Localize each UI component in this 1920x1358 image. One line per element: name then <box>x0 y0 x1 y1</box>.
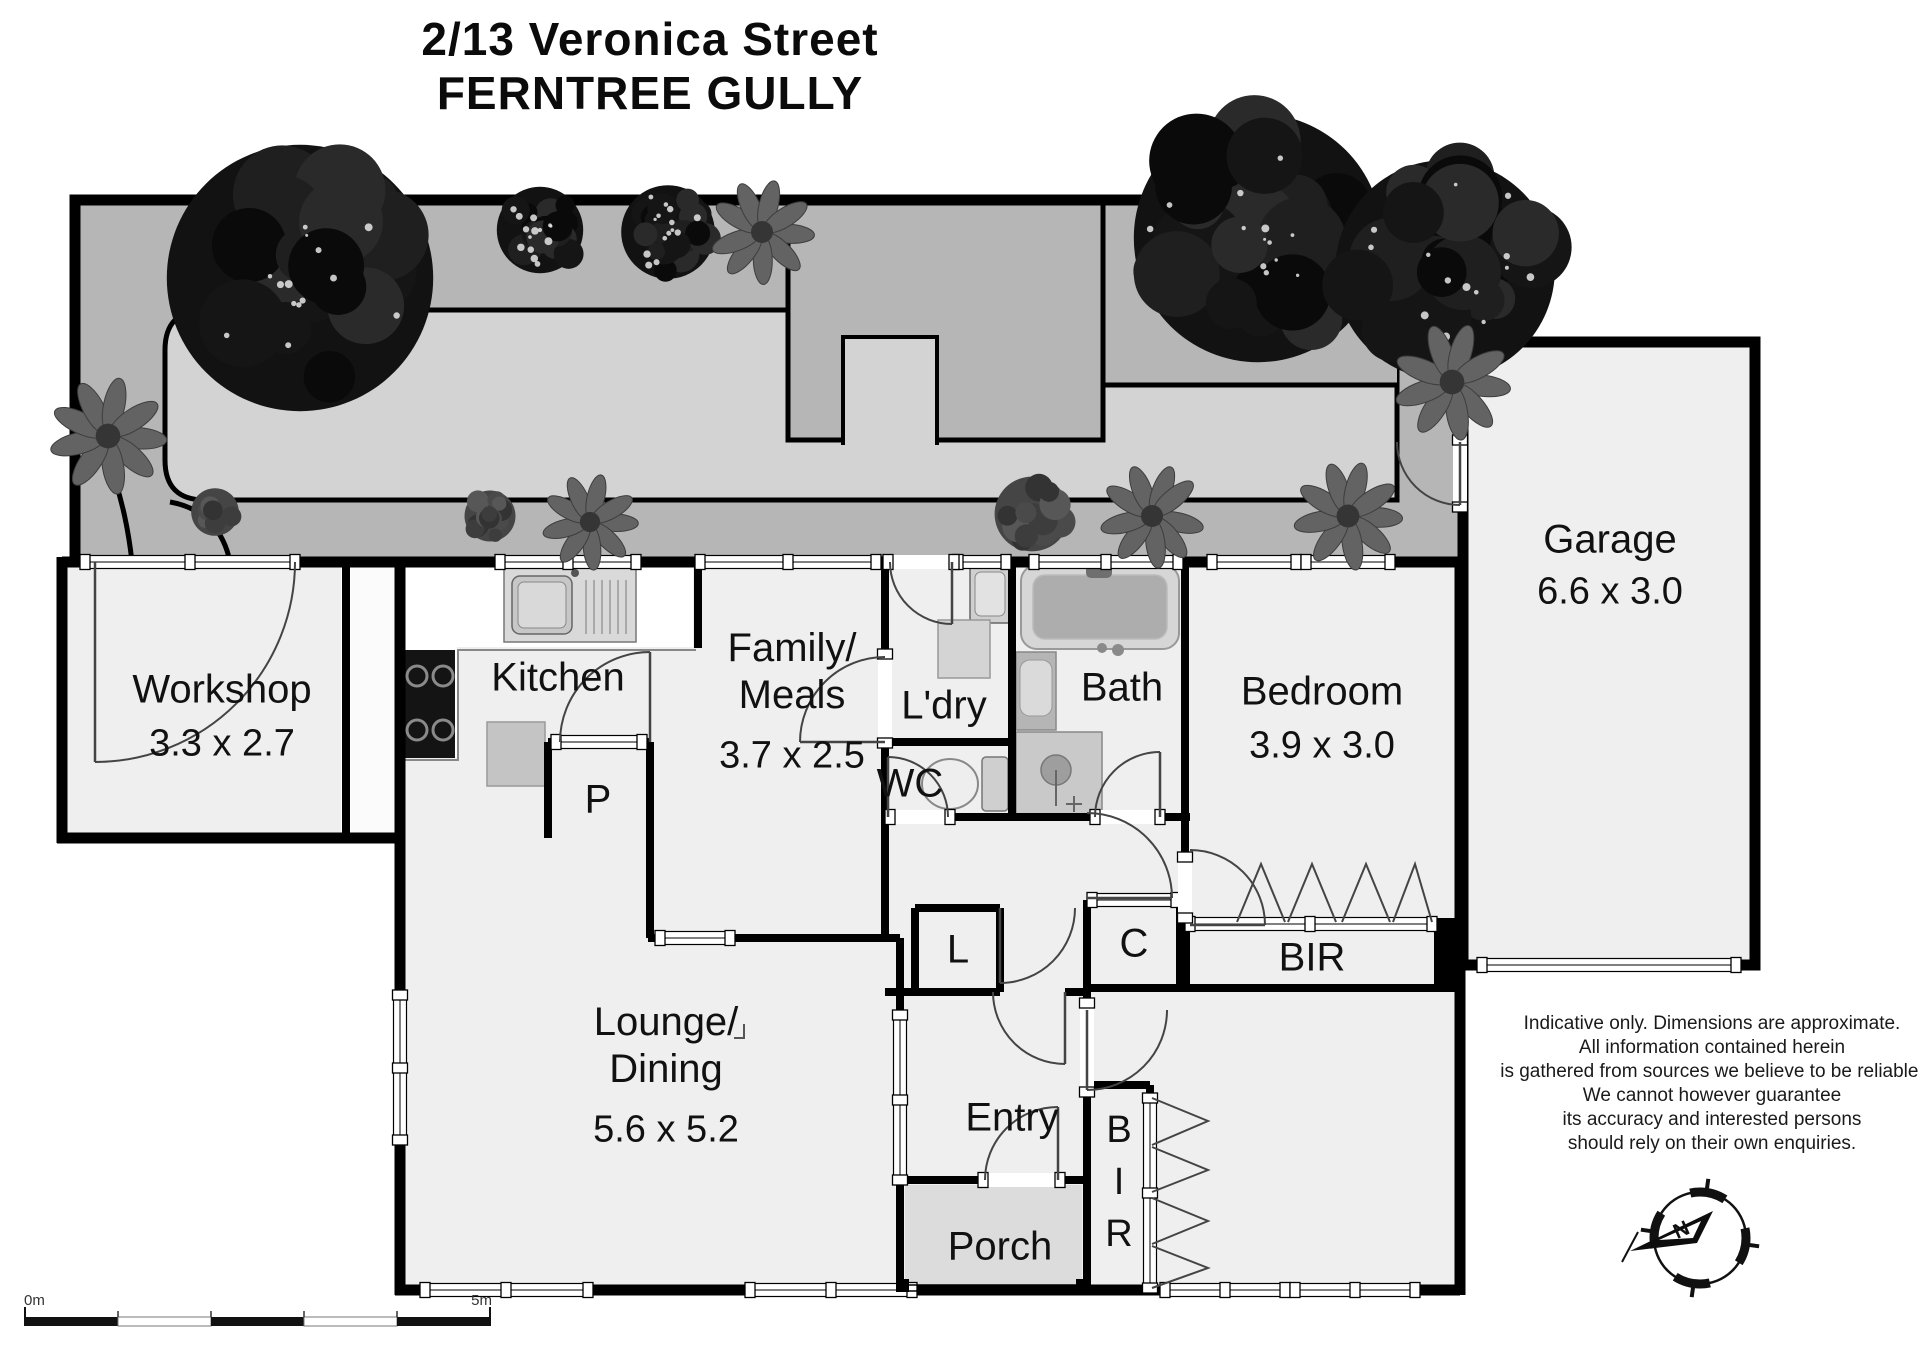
closet-label-pantry: P <box>585 776 612 823</box>
disclaimer-line: Indicative only. Dimensions are approxim… <box>1492 1012 1920 1036</box>
kitchen-sink-icon <box>504 568 636 642</box>
room-label-porch: Porch <box>948 1223 1053 1270</box>
stove-icon <box>403 650 455 758</box>
disclaimer-line: We cannot however guarantee <box>1492 1084 1920 1108</box>
room-label-garage: Garage <box>1543 516 1676 563</box>
room-label-wc: WC <box>877 760 944 807</box>
shower-icon <box>1016 732 1102 814</box>
room-label-kitchen: Kitchen <box>491 654 624 701</box>
disclaimer-text: Indicative only. Dimensions are approxim… <box>1492 1012 1920 1156</box>
room-dims-lounge-dining: 5.6 x 5.2 <box>593 1108 739 1153</box>
floor-plan-page: N 2/13 Veronica Street FERNTREE GULLY Wo… <box>0 0 1920 1358</box>
scale-bar <box>25 1307 490 1326</box>
fridge-space-icon <box>487 722 545 786</box>
closet-label-bir-bedroom1: BIR <box>1279 934 1346 981</box>
disclaimer-line: should rely on their own enquiries. <box>1492 1132 1920 1156</box>
scale-start-label: 0m <box>24 1292 45 1309</box>
garage-room <box>1463 342 1755 965</box>
disclaimer-line: is gathered from sources we believe to b… <box>1492 1060 1920 1084</box>
room-label-laundry: L'dry <box>901 682 986 729</box>
room-dims-bedroom1: 3.9 x 3.0 <box>1249 724 1395 769</box>
room-label-family-meals: Family/ Meals <box>728 625 857 719</box>
room-label-lounge-dining: Lounge/ Dining <box>594 999 739 1093</box>
compass-rose: N <box>1622 1179 1759 1297</box>
disclaimer-line: its accuracy and interested persons <box>1492 1108 1920 1132</box>
disclaimer-line: All information contained herein <box>1492 1036 1920 1060</box>
room-label-bedroom1: Bedroom <box>1241 668 1403 715</box>
closet-label-bir-bedroom2: B I R <box>1105 1104 1132 1260</box>
laundry-trough-icon <box>970 565 1010 623</box>
bathtub-icon <box>1021 558 1179 656</box>
scale-end-label: 5m <box>452 1292 492 1309</box>
room-label-entry: Entry <box>965 1094 1058 1141</box>
closet-label-cupboard: C <box>1120 920 1149 967</box>
room-label-bath: Bath <box>1081 664 1163 711</box>
closet-label-linen: L <box>947 926 969 973</box>
room-dims-garage: 6.6 x 3.0 <box>1537 570 1683 615</box>
garden-path-slot <box>843 337 937 445</box>
room-label-workshop: Workshop <box>132 666 311 713</box>
page-title-address: 2/13 Veronica Street <box>421 12 878 66</box>
washer-icon <box>938 620 990 678</box>
room-dims-workshop: 3.3 x 2.7 <box>149 722 295 767</box>
page-title-suburb: FERNTREE GULLY <box>437 66 863 120</box>
room-dims-family-meals: 3.7 x 2.5 <box>719 734 865 779</box>
